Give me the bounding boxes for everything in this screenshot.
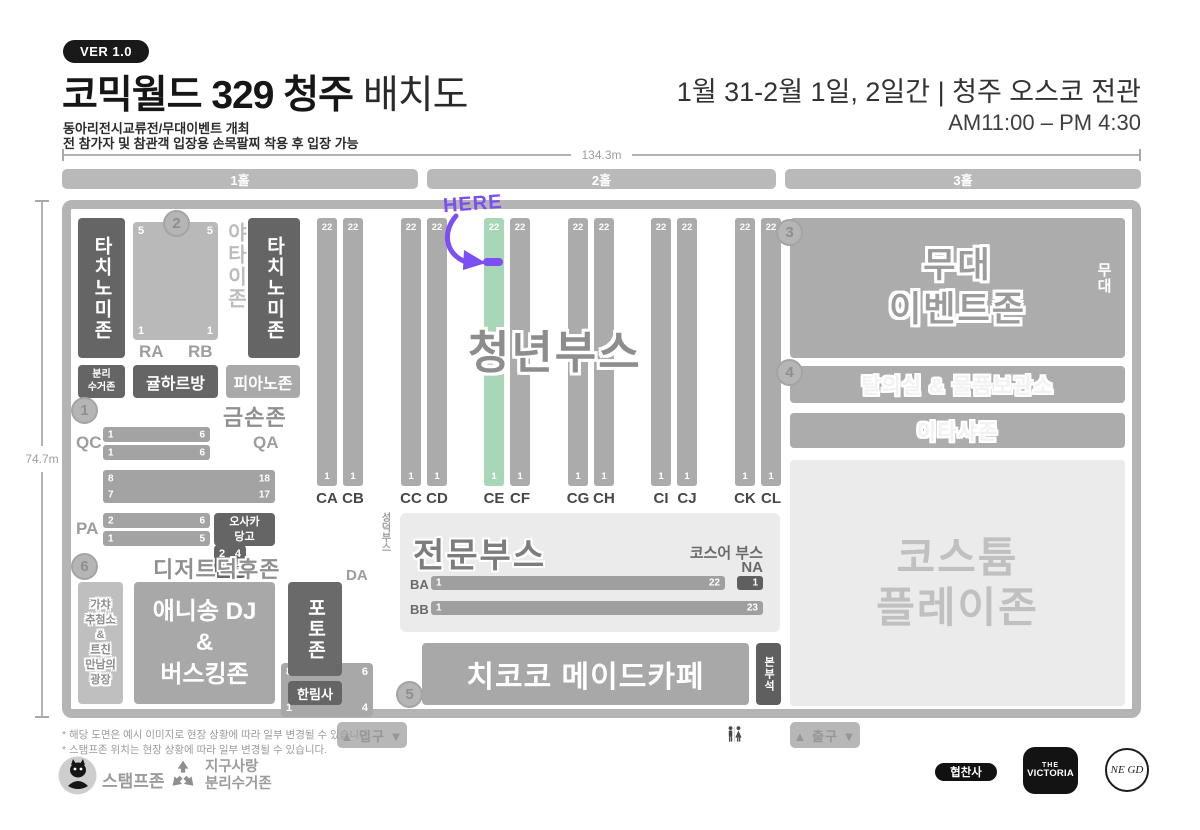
stamp-zone-label: 스탬프존 (102, 767, 165, 792)
booth-column-CB: 221 (343, 218, 363, 486)
zone-rarb-block: 5 5 1 1 (133, 222, 218, 340)
zone-tachinomi-right: 타치노미존 (248, 218, 300, 358)
booth-column-label-CB: CB (333, 490, 373, 507)
footnote-1: * 해당 도면은 예시 이미지로 현장 상황에 따라 일부 변경될 수 있습니다… (62, 727, 372, 742)
double-bar-row2-right: 17 (259, 490, 270, 501)
booth-column-CI: 221 (651, 218, 671, 486)
booth-column-bottom-number: 1 (568, 471, 588, 482)
booth-column-bottom-number: 1 (401, 471, 421, 482)
zone-title-geumson: 금손존 (223, 400, 287, 432)
qc-row1-right-number: 6 (199, 429, 205, 440)
booth-column-CC: 221 (401, 218, 421, 486)
ba-right-number: 22 (709, 578, 720, 589)
recycle-zone-label: 지구사랑 분리수거존 (205, 759, 272, 793)
measure-tick (1139, 149, 1141, 161)
row-label-bb: BB (410, 602, 429, 617)
pa-row1-right-number: 6 (199, 515, 205, 526)
event-date-venue: 1월 31-2월 1일, 2일간 | 청주 오스코 전관 (677, 70, 1141, 109)
stage-side-label: 무대 (1093, 262, 1114, 312)
hall2-header: 2홀 (427, 169, 776, 189)
event-time: AM11:00 – PM 4:30 (948, 110, 1141, 136)
exit-gate: ▲ 출구 ▼ (790, 722, 860, 748)
ba-left-number: 1 (436, 578, 442, 589)
pa-row2-left-number: 1 (108, 533, 114, 544)
map-marker-4: 4 (776, 359, 803, 386)
measure-line (64, 154, 571, 156)
booth-column-top-number: 22 (568, 222, 588, 233)
row-label-qc: QC (76, 433, 102, 453)
zone-gacha-meetup: 가챠 추첨소 & 트친 만남의 광장 (78, 582, 123, 704)
double-bar-row1-left: 8 (108, 474, 114, 485)
qc-row1-left-number: 1 (108, 429, 114, 440)
victoria-logo: THE VICTORIA (1023, 747, 1078, 794)
booth-column-bottom-number: 1 (343, 471, 363, 482)
height-measure-label: 74.7m (25, 452, 58, 466)
booth-column-CK: 221 (735, 218, 755, 486)
na-box: 1 (737, 576, 763, 590)
zone-maid-cafe: 치코코 메이드카페 (422, 643, 749, 705)
measure-line (632, 154, 1139, 156)
row-label-pa: PA (76, 519, 98, 539)
rarb-top-left-number: 5 (138, 225, 144, 237)
booth-column-top-number: 22 (510, 222, 530, 233)
label-seongdeok-booth: 성덕부스 (377, 512, 392, 570)
booth-column-label-CF: CF (500, 490, 540, 507)
map-marker-6: 6 (71, 553, 98, 580)
zone-yatai: 야타이존 (221, 222, 250, 337)
zone-hanrimsa: 한림사 (288, 681, 342, 705)
pa-row2-bar: 1 5 (103, 531, 210, 546)
width-measure-label: 134.3m (581, 148, 621, 162)
row-label-rb: RB (188, 342, 213, 362)
booth-column-top-number: 22 (677, 222, 697, 233)
booth-column-top-number: 22 (594, 222, 614, 233)
zone-changing-storage: 탈의실 & 물품보관소 (790, 366, 1125, 403)
map-marker-5: 5 (396, 681, 423, 708)
booth-column-bottom-number: 1 (510, 471, 530, 482)
da-top-right-number: 6 (362, 666, 368, 678)
recycle-icon (167, 758, 199, 790)
na-row-label: NA (660, 559, 763, 576)
booth-column-bottom-number: 1 (651, 471, 671, 482)
booth-column-label-CD: CD (417, 490, 457, 507)
map-marker-3: 3 (776, 219, 803, 246)
map-marker-2: 2 (163, 210, 190, 237)
zone-anisong-dj-busking: 애니송 DJ & 버스킹존 (134, 582, 275, 704)
booth-column-bottom-number: 1 (594, 471, 614, 482)
booth-column-CL: 221 (761, 218, 781, 486)
row-label-ba: BA (410, 577, 429, 592)
bb-left-number: 1 (436, 603, 442, 614)
stamp-zone-icon (58, 756, 97, 795)
zone-title-dessert: 디저트덕후존 (153, 552, 280, 584)
row-label-ra: RA (139, 342, 164, 362)
booth-column-top-number: 22 (343, 222, 363, 233)
zone-piano: 피아노존 (226, 365, 300, 398)
booth-column-bottom-number: 1 (677, 471, 697, 482)
booth-column-top-number: 22 (651, 222, 671, 233)
double-row-bar: 8 18 7 17 (103, 470, 275, 503)
booth-column-bottom-number: 1 (427, 471, 447, 482)
measure-tick (35, 716, 49, 718)
zone-tachinomi-left: 타치노미존 (78, 218, 125, 358)
page-title-main: 코믹월드 329 청주 (62, 74, 363, 117)
booth-column-bottom-number: 1 (484, 471, 504, 482)
booth-column-bottom-number: 1 (761, 471, 781, 482)
double-bar-row2-left: 7 (108, 490, 114, 501)
qc-row2-bar: 1 6 (103, 445, 210, 460)
qc-row2-left-number: 1 (108, 447, 114, 458)
booth-column-bottom-number: 1 (735, 471, 755, 482)
zone-osaka-dango: 오사카 당고 (214, 513, 275, 546)
na-number: 1 (752, 578, 758, 589)
negd-logo: NE GD (1105, 748, 1149, 792)
zone-title-pro-booth: 전문부스 (413, 528, 546, 577)
hall1-header: 1홀 (62, 169, 418, 189)
rarb-bottom-left-number: 1 (138, 325, 144, 337)
measure-line (41, 472, 43, 716)
booth-column-CA: 221 (317, 218, 337, 486)
zone-gyulharbang: 귤하르방 (133, 365, 218, 398)
zone-stage-event: 무대 이벤트존 (790, 218, 1125, 358)
zone-photo: 포토존 (288, 582, 342, 676)
width-measure: 134.3m (62, 148, 1141, 162)
rarb-bottom-right-number: 1 (207, 325, 213, 337)
zone-itasha: 이타샤존 (790, 413, 1125, 448)
victoria-logo-main: VICTORIA (1027, 769, 1074, 779)
pa-row1-bar: 2 6 (103, 513, 210, 528)
zone-recycling: 분리 수거존 (78, 365, 125, 398)
height-measure: 74.7m (20, 200, 64, 718)
map-marker-1: 1 (71, 397, 98, 424)
pa-row1-left-number: 2 (108, 515, 114, 526)
toilet-icon (722, 721, 747, 748)
zone-stage-event-label: 무대 이벤트존 (889, 244, 1026, 332)
measure-line (41, 202, 43, 446)
booth-column-top-number: 22 (735, 222, 755, 233)
booth-column-label-CJ: CJ (667, 490, 707, 507)
double-bar-row1-right: 18 (259, 474, 270, 485)
zone-hq-seat: 본부석 (756, 643, 781, 705)
zone-title-youth-booth: 청년부스 (468, 316, 642, 381)
hall3-header: 3홀 (785, 169, 1141, 189)
bb-bar: 1 23 (431, 601, 763, 615)
sponsor-badge: 협찬사 (935, 763, 997, 781)
row-label-qa: QA (253, 433, 279, 453)
booth-column-label-CL: CL (751, 490, 791, 507)
bb-right-number: 23 (747, 603, 758, 614)
booth-column-top-number: 22 (317, 222, 337, 233)
booth-column-top-number: 22 (401, 222, 421, 233)
booth-column-CJ: 221 (677, 218, 697, 486)
page-title-suffix: 배치도 (363, 74, 468, 117)
row-label-da: DA (346, 567, 368, 584)
pa-row2-right-number: 5 (199, 533, 205, 544)
here-target-mark (483, 258, 503, 266)
page-title: 코믹월드 329 청주 배치도 (62, 64, 468, 120)
qc-row1-bar: 1 6 (103, 427, 210, 442)
version-badge: VER 1.0 (63, 40, 149, 63)
booth-column-bottom-number: 1 (317, 471, 337, 482)
rarb-top-right-number: 5 (207, 225, 213, 237)
zone-costume-play: 코스튬 플레이존 (790, 460, 1125, 706)
ba-bar: 1 22 (431, 576, 725, 590)
floorplan-poster: VER 1.0 코믹월드 329 청주 배치도 동아리전시교류전/무대이벤트 개… (0, 0, 1200, 830)
booth-column-label-CH: CH (584, 490, 624, 507)
qc-row2-right-number: 6 (199, 447, 205, 458)
da-bottom-right-number: 4 (362, 702, 368, 714)
footnote-2: * 스탬프존 위치는 현장 상황에 따라 일부 변경될 수 있습니다. (62, 742, 327, 757)
